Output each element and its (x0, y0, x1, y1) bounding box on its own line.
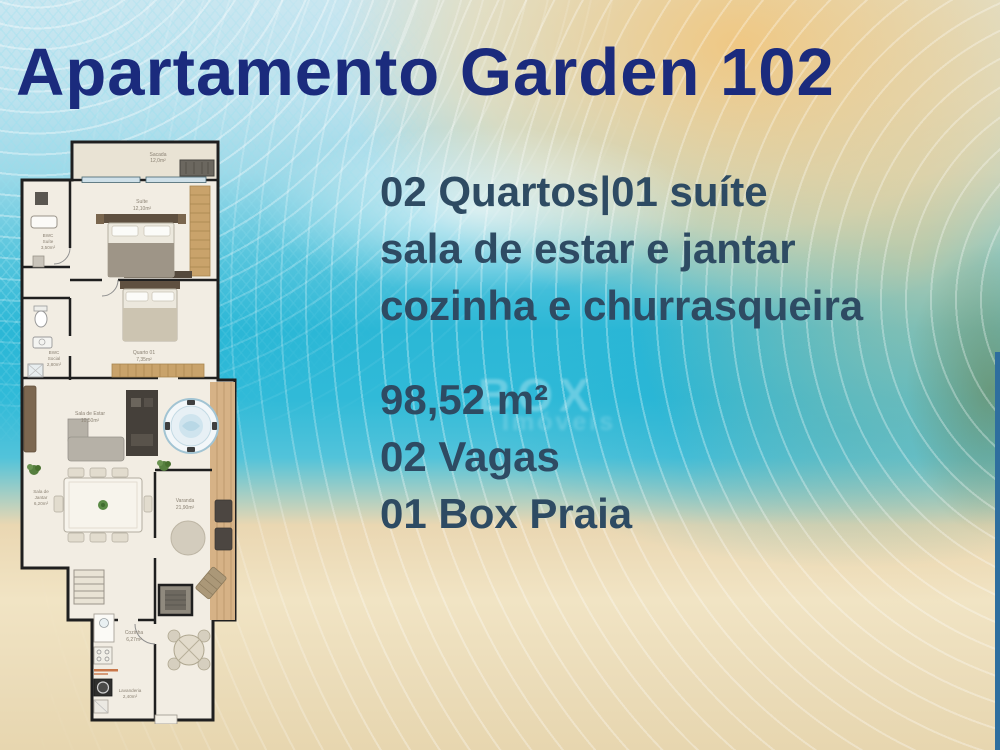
spec-line-box: 01 Box Praia (380, 485, 632, 542)
page-title: Apartamento Garden 102 (16, 34, 835, 111)
bistro-table (168, 630, 210, 670)
label-sacada-area: 12,0m² (150, 158, 166, 164)
label-bwc-social-3: 2,80m² (47, 362, 62, 367)
spec-line-area: 98,52 m² (380, 371, 632, 428)
label-sala-jantar-1: Sala de (33, 489, 49, 494)
label-varanda: Varanda (176, 498, 195, 504)
label-sala-jantar-3: 6,20m² (34, 501, 49, 506)
floor-plan: Sacada 12,0m² Suíte 12,10m² BWC Suíte 3,… (8, 140, 244, 724)
label-bwc-suite-2: Suíte (43, 239, 54, 244)
label-bwc-suite-3: 3,50m² (41, 245, 56, 250)
feature-list: 02 Quartos|01 suíte sala de estar e jant… (380, 163, 863, 334)
label-sala-estar: Sala de Estar (75, 411, 105, 417)
label-sala-jantar-2: Jantar (35, 495, 48, 500)
label-quarto: Quarto 01 (133, 350, 155, 356)
feature-line-2: sala de estar e jantar (380, 220, 863, 277)
entry-step (155, 715, 177, 724)
label-lavanderia-area: 2,40m² (123, 694, 138, 699)
label-varanda-area: 21,90m² (176, 505, 195, 511)
label-cozinha-area: 6,27m² (126, 637, 142, 643)
label-suite: Suíte (136, 199, 148, 205)
stairs (74, 570, 104, 604)
right-edge-strip (995, 352, 1000, 750)
label-suite-area: 12,10m² (133, 206, 152, 212)
spec-list: 98,52 m² 02 Vagas 01 Box Praia (380, 371, 632, 542)
label-lavanderia: Lavanderia (119, 688, 142, 693)
label-bwc-social-1: BWC (49, 350, 60, 355)
label-quarto-area: 7,35m² (136, 357, 152, 363)
dining-table (54, 468, 152, 542)
spa-tub (164, 399, 218, 453)
label-cozinha: Cozinha (125, 630, 144, 636)
floor-plan-svg: Sacada 12,0m² Suíte 12,10m² BWC Suíte 3,… (8, 140, 244, 724)
balcony-bench (180, 160, 214, 176)
label-bwc-social-2: Social (48, 356, 61, 361)
flyer-canvas: Apartamento Garden 102 (0, 0, 1000, 750)
spec-line-vagas: 02 Vagas (380, 428, 632, 485)
label-bwc-suite-1: BWC (43, 233, 54, 238)
feature-line-1: 02 Quartos|01 suíte (380, 163, 863, 220)
feature-line-3: cozinha e churrasqueira (380, 277, 863, 334)
label-sala-estar-area: 10,50m² (81, 418, 100, 424)
